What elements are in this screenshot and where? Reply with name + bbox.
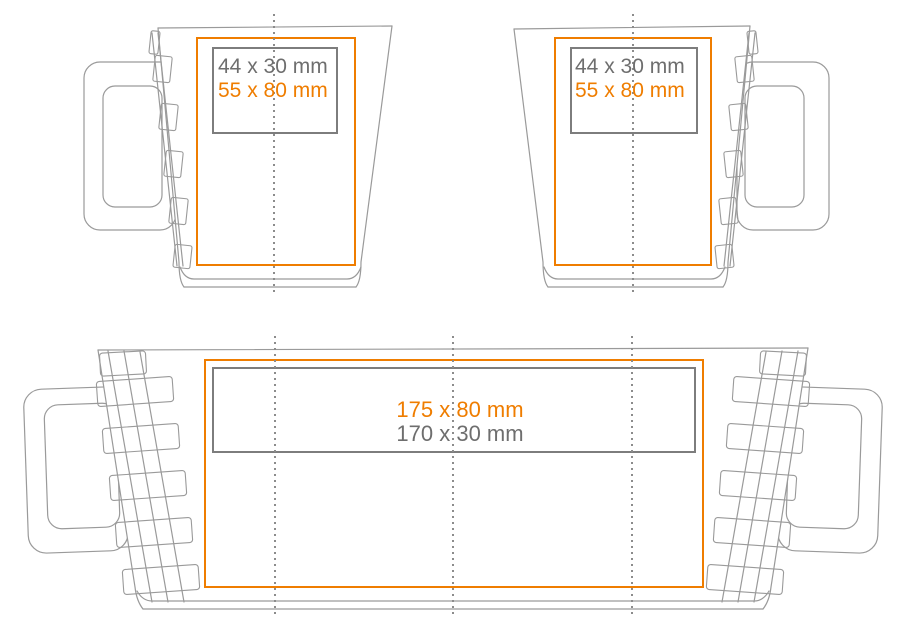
dimension-text-orange: 55 x 80 mm: [218, 79, 328, 102]
diagram-drawing: 44 x 30 mm 55 x 80 mm 44 x 30 mm 55 x 80…: [0, 0, 900, 633]
mug-unrolled-wrap-view: 175 x 80 mm 170 x 30 mm: [23, 336, 883, 614]
mug-handle-hole: [103, 86, 162, 207]
dimension-text-gray: 170 x 30 mm: [396, 421, 523, 446]
dimension-text-orange: 55 x 80 mm: [575, 79, 685, 102]
dimension-text-gray: 44 x 30 mm: [575, 55, 685, 78]
mug-handle-hole: [745, 86, 804, 207]
mug-print-template-diagram: 44 x 30 mm 55 x 80 mm 44 x 30 mm 55 x 80…: [0, 0, 900, 633]
dimension-text-orange: 175 x 80 mm: [396, 397, 523, 422]
dimension-text-gray: 44 x 30 mm: [218, 55, 328, 78]
mug-front-view-right-handle: 44 x 30 mm 55 x 80 mm: [514, 14, 829, 292]
mug-handle-hole: [786, 403, 862, 529]
mug-front-view-left-handle: 44 x 30 mm 55 x 80 mm: [84, 14, 392, 292]
